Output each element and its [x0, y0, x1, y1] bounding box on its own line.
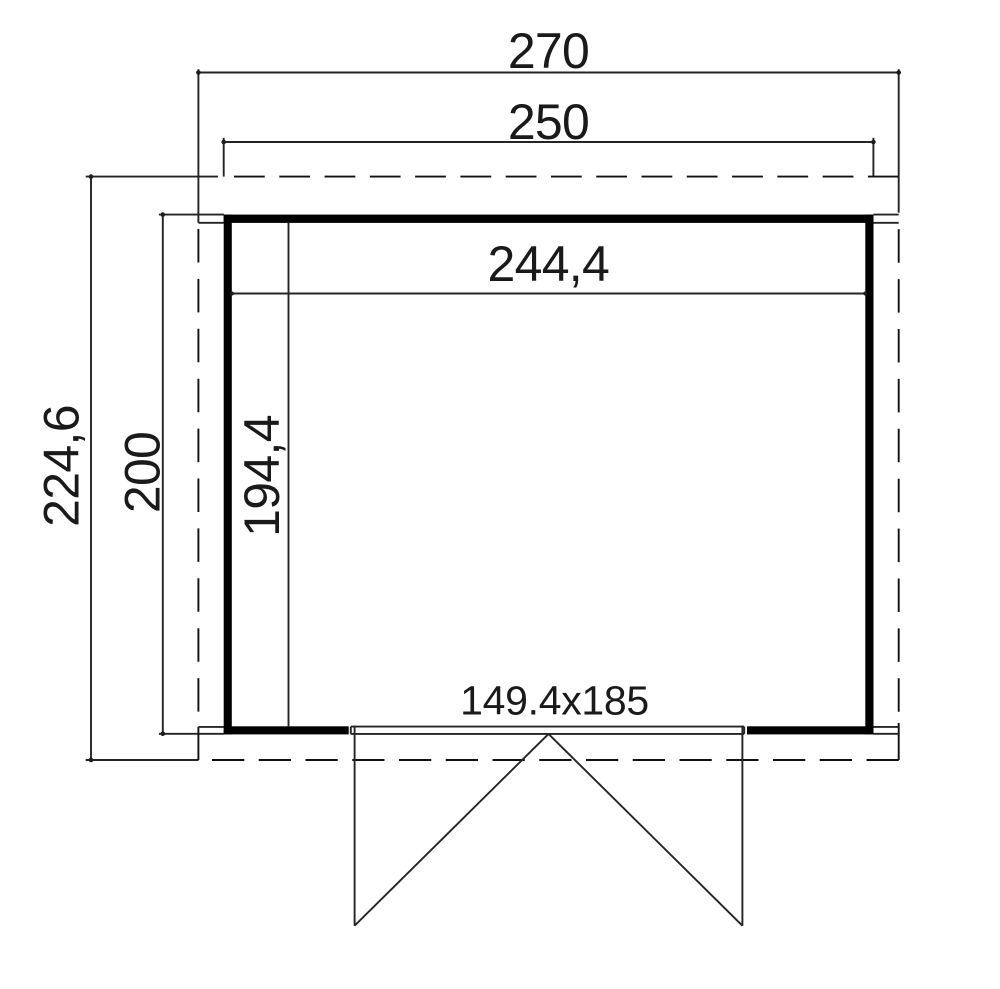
svg-text:194,4: 194,4: [234, 415, 290, 537]
svg-text:149.4x185: 149.4x185: [460, 678, 649, 724]
svg-text:224,6: 224,6: [34, 405, 90, 527]
svg-text:244,4: 244,4: [487, 236, 609, 292]
svg-text:270: 270: [508, 23, 589, 79]
svg-text:250: 250: [508, 94, 589, 150]
svg-text:200: 200: [115, 432, 171, 513]
